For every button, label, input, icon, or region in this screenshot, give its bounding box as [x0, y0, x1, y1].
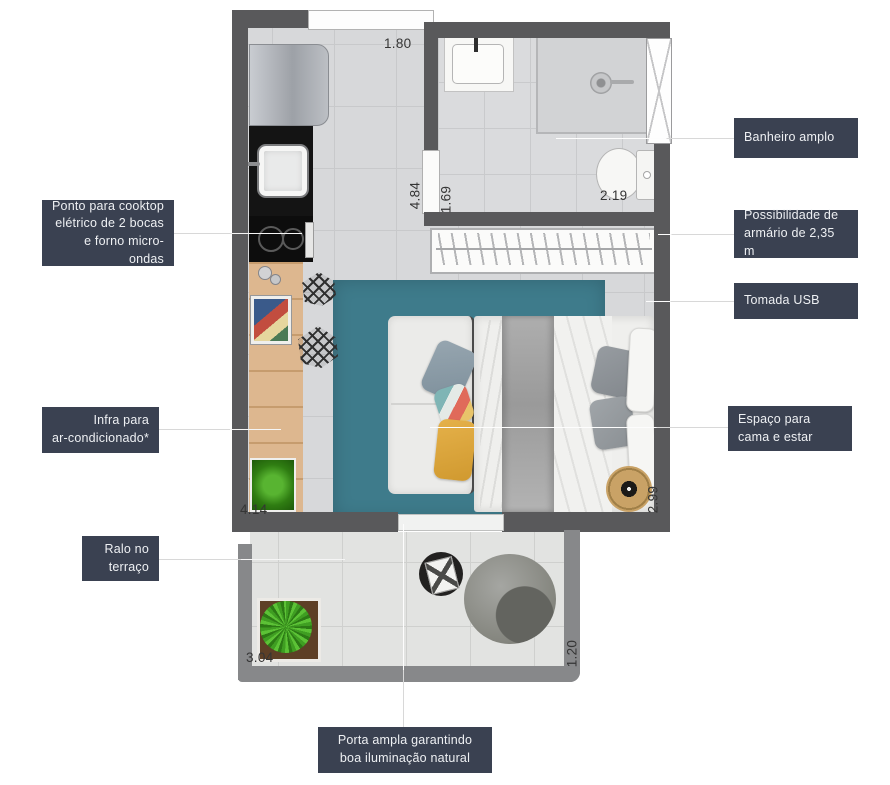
dimension-living-depth: 4.84	[408, 174, 423, 218]
shower-glass-panel	[646, 38, 672, 144]
dimension-bath-door: 1.69	[439, 178, 454, 222]
dimension-terrace-width: 3.04	[246, 650, 273, 665]
callout-line-porta	[403, 524, 404, 727]
shower-drain	[590, 72, 612, 94]
callout-tomada-usb: Tomada USB	[734, 283, 858, 319]
callout-banheiro-amplo: Banheiro amplo	[734, 118, 858, 158]
callout-line-banheiro	[556, 138, 734, 139]
dimension-bed-wall: 2.99	[646, 478, 661, 522]
vanity-basin	[452, 44, 504, 84]
terrace-wall-bottom	[238, 666, 580, 682]
wall-bathroom-top	[430, 22, 656, 38]
callout-line-espaco	[430, 427, 728, 428]
callout-armario: Possibilidade de armário de 2,35 m	[734, 210, 858, 258]
callout-line-armario	[658, 234, 734, 235]
wall-top	[232, 10, 312, 28]
callout-cooktop: Ponto para cooktop elétrico de 2 bocas e…	[42, 200, 174, 266]
callout-espaco-cama: Espaço para cama e estar	[728, 406, 852, 451]
vanity-faucet	[474, 38, 478, 52]
kitchen-sink	[257, 144, 309, 198]
dimension-kitchen-run: 4.14	[240, 502, 267, 517]
wardrobe-rod	[436, 248, 652, 250]
dimension-entry-width: 1.80	[384, 36, 411, 51]
dimension-terrace-depth: 1.20	[565, 632, 580, 676]
callout-line-infra	[159, 429, 281, 430]
bed-blanket	[502, 316, 554, 512]
callout-line-ralo	[159, 559, 345, 560]
kitchen-faucet	[246, 162, 260, 166]
callout-ralo-terraco: Ralo no terraço	[82, 536, 159, 581]
callout-infra-ar-condicionado: Infra para ar-condicionado*	[42, 407, 159, 453]
toilet-flush-button	[643, 171, 651, 179]
floor-plan-canvas: 1.80 4.84 1.69 2.19 4.14 2.99 3.04 1.20 …	[0, 0, 890, 785]
shower-wand	[610, 80, 634, 84]
wall-left	[232, 10, 248, 532]
wall-bathroom-left	[424, 22, 438, 150]
bed-sheet-folds	[480, 320, 504, 508]
beanbag-chair	[464, 554, 556, 644]
bathroom-door	[422, 150, 440, 214]
wall-bathroom-bottom	[424, 212, 670, 226]
callout-line-cooktop	[174, 233, 302, 234]
oven-handle	[305, 222, 314, 258]
entry-door	[308, 10, 434, 30]
cooktop-burner	[282, 228, 304, 250]
callout-line-tomada	[646, 301, 734, 302]
dimension-bath-width: 2.19	[600, 188, 627, 203]
art-frame	[251, 296, 291, 344]
terrace-plant	[260, 601, 312, 653]
terrace-sliding-door	[398, 514, 504, 531]
cooktop-burner	[258, 226, 284, 252]
callout-porta-ampla: Porta ampla garantindo boa iluminação na…	[318, 727, 492, 773]
coffee-cup	[270, 274, 281, 285]
fridge	[249, 44, 329, 126]
